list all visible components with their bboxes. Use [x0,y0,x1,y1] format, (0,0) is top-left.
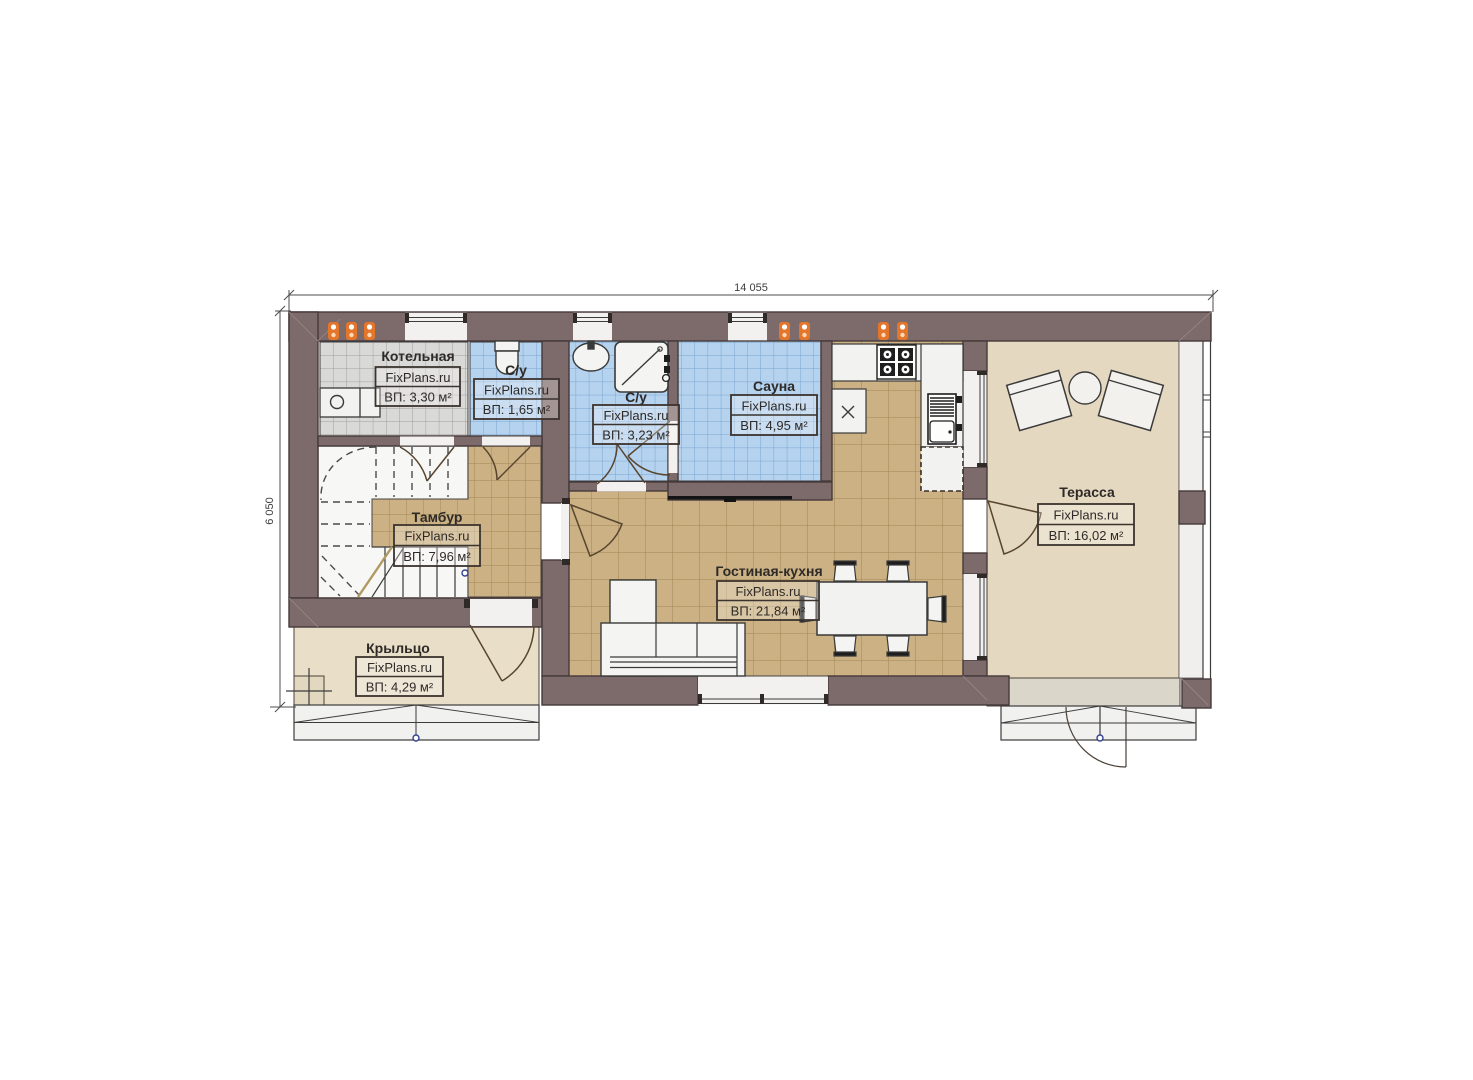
svg-text:FixPlans.ru: FixPlans.ru [367,660,432,675]
svg-text:С/у: С/у [625,389,647,405]
svg-text:Котельная: Котельная [381,348,454,364]
svg-text:ВП: 7,96 м²: ВП: 7,96 м² [403,549,471,564]
svg-text:FixPlans.ru: FixPlans.ru [385,370,450,385]
svg-text:ВП: 21,84 м²: ВП: 21,84 м² [731,604,806,619]
svg-text:ВП: 4,95 м²: ВП: 4,95 м² [740,418,808,433]
svg-text:FixPlans.ru: FixPlans.ru [735,584,800,599]
svg-text:Крыльцо: Крыльцо [366,640,430,656]
svg-text:FixPlans.ru: FixPlans.ru [404,529,469,544]
svg-text:ВП: 4,29 м²: ВП: 4,29 м² [366,680,434,695]
svg-text:Тамбур: Тамбур [412,509,463,525]
svg-text:FixPlans.ru: FixPlans.ru [1053,508,1118,523]
svg-text:С/у: С/у [505,362,527,378]
svg-text:FixPlans.ru: FixPlans.ru [484,383,549,398]
svg-text:Сауна: Сауна [753,378,795,394]
svg-text:6 050: 6 050 [264,497,276,525]
svg-text:Гостиная-кухня: Гостиная-кухня [715,563,822,579]
svg-text:ВП: 3,23 м²: ВП: 3,23 м² [602,428,670,443]
svg-text:FixPlans.ru: FixPlans.ru [603,408,668,423]
svg-text:ВП: 3,30 м²: ВП: 3,30 м² [384,390,452,405]
svg-text:FixPlans.ru: FixPlans.ru [741,399,806,414]
svg-text:ВП: 16,02 м²: ВП: 16,02 м² [1049,528,1124,543]
svg-text:14 055: 14 055 [734,282,768,294]
svg-text:ВП: 1,65 м²: ВП: 1,65 м² [483,402,551,417]
svg-text:Терасса: Терасса [1059,484,1115,500]
